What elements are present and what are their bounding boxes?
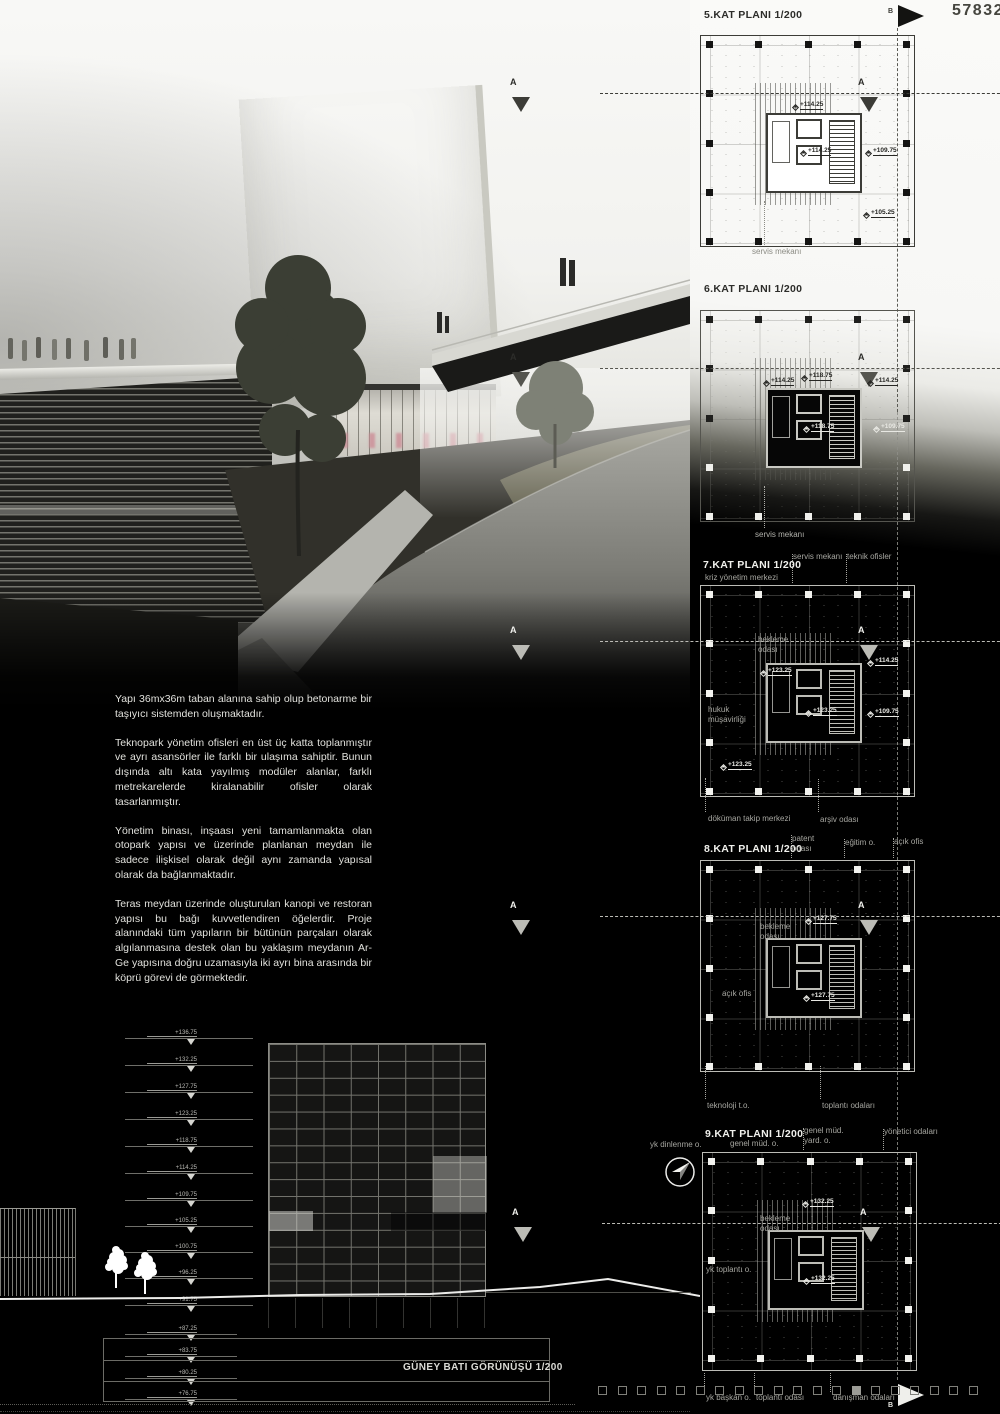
section-a-line: A A: [600, 916, 1000, 917]
strip-square: [754, 1386, 763, 1395]
section-arrow-icon: [514, 1227, 532, 1242]
section-b-label: B: [888, 8, 893, 15]
section-a-label: A: [510, 625, 517, 635]
elevation-level: +127.75: [125, 1084, 253, 1093]
room-label: yönetici odaları: [884, 1127, 938, 1137]
room-label: yk toplantı o.: [706, 1265, 751, 1275]
strip-square: [949, 1386, 958, 1395]
level-marker-icon: [863, 212, 870, 219]
section-b-arrow-icon: [898, 5, 924, 27]
slab-line: [104, 1381, 549, 1382]
column-grid: [706, 591, 713, 598]
strip-square: [969, 1386, 978, 1395]
level-marker: +123.25: [721, 761, 752, 770]
elevation-level: +105.25: [125, 1218, 253, 1227]
section-arrow-icon: [512, 372, 530, 387]
level-marker: +114.25: [793, 101, 823, 110]
room-label: servis mekanı: [793, 552, 842, 562]
section-arrow-icon: [512, 97, 530, 112]
section-a-label: A: [860, 1207, 867, 1217]
room-label: bekleme odası: [758, 635, 796, 654]
section-a-line: A A: [600, 641, 1000, 642]
strip-square: [813, 1386, 822, 1395]
elevator-icon: [796, 970, 822, 990]
strip-square: [793, 1386, 802, 1395]
room-label: eğitim o.: [845, 838, 875, 848]
leader-line: [792, 554, 793, 583]
section-a-label: A: [510, 900, 517, 910]
north-arrow-icon: [663, 1155, 697, 1189]
wc-cell: [772, 671, 790, 713]
render-scene: [0, 0, 690, 710]
room-label: kriz yönetim merkezi: [705, 573, 778, 583]
elevation-level: +123.25: [125, 1111, 253, 1120]
room-label: yk dinlenme o.: [650, 1140, 702, 1150]
level-marker: +114.25: [764, 377, 794, 386]
competition-board: 57832 B B 5.KAT PLANI 1/200 A A +114.25 …: [0, 0, 1000, 1414]
level-arrow-icon: [187, 1174, 195, 1180]
elevator-icon: [796, 944, 822, 964]
room-label: açık ofis: [722, 989, 751, 999]
level-arrow-icon: [187, 1066, 195, 1072]
section-a-label: A: [858, 900, 865, 910]
strip-square: [676, 1386, 685, 1395]
room-label: bekleme odası: [760, 922, 796, 941]
leader-line: [883, 1129, 884, 1150]
room-label: genel müd. o.: [730, 1139, 778, 1149]
wc-cell: [772, 121, 790, 163]
level-marker-icon: [803, 426, 810, 433]
room-label: patent odası: [792, 834, 822, 853]
stair-icon: [831, 1237, 857, 1301]
column-grid: [706, 316, 713, 323]
elevation-title: GÜNEY BATI GÖRÜNÜŞÜ 1/200: [403, 1362, 548, 1373]
elevator-icon: [796, 669, 822, 689]
glass-reflection: [433, 1156, 487, 1213]
strip-square: [715, 1386, 724, 1395]
elevation-level: +109.75: [125, 1192, 253, 1201]
entry-number: 57832: [952, 2, 1000, 20]
paragraph: Yapı 36mx36m taban alanına sahip olup be…: [115, 692, 372, 722]
section-a-line: A A: [600, 368, 1000, 369]
elevation-level: +136.75: [125, 1030, 253, 1039]
room-label: hukuk müşavirliği: [708, 705, 758, 724]
room-label: toplantı odaları: [822, 1101, 875, 1111]
level-marker-icon: [805, 710, 812, 717]
strip-square: [891, 1386, 900, 1395]
level-marker-icon: [802, 1201, 809, 1208]
level-marker: +127.75: [804, 992, 835, 1001]
column-grid: [708, 1158, 715, 1165]
room-label: servis mekanı: [752, 247, 801, 257]
service-core: [768, 1230, 864, 1310]
section-a-label: A: [510, 77, 517, 87]
elevator-icon: [796, 394, 822, 414]
narrative-text: Yapı 36mx36m taban alanına sahip olup be…: [115, 692, 372, 1000]
section-arrow-icon: [860, 97, 878, 112]
shadow-patch: [391, 1212, 487, 1231]
section-a-line: A A: [602, 1223, 1000, 1224]
strip-square: [910, 1386, 919, 1395]
leader-line: [820, 1066, 821, 1099]
elevator-icon: [796, 119, 822, 139]
room-label: teknoloji t.o.: [707, 1101, 750, 1111]
strip-square: [930, 1386, 939, 1395]
level-marker: +109.75: [868, 708, 899, 717]
level-marker-icon: [805, 918, 812, 925]
strip-square: [696, 1386, 705, 1395]
elevation-level: +100.75: [125, 1244, 253, 1253]
leader-line: [764, 486, 765, 528]
room-label: bekleme odası: [760, 1214, 796, 1233]
strip-square: [618, 1386, 627, 1395]
elevation-facade-grid: [268, 1043, 486, 1297]
level-marker-icon: [867, 380, 874, 387]
leader-line: [705, 1066, 706, 1099]
level-arrow-icon: [187, 1147, 195, 1153]
leader-line: [791, 835, 792, 858]
section-a-label: A: [510, 352, 517, 362]
dark-tree: [235, 255, 366, 462]
wc-cell: [772, 396, 790, 438]
strip-square: [832, 1386, 841, 1395]
section-a-label: A: [858, 625, 865, 635]
leader-line: [893, 838, 894, 858]
section-arrow-icon: [860, 920, 878, 935]
room-label: genel müd. yard. o.: [804, 1126, 852, 1145]
section-arrow-icon: [512, 645, 530, 660]
service-core: [766, 938, 862, 1018]
leader-line: [764, 201, 765, 245]
dotted-baseline: [0, 1404, 575, 1405]
strip-square: [871, 1386, 880, 1395]
room-label: teknik ofisler: [847, 552, 891, 562]
level-arrow-icon: [187, 1253, 195, 1259]
plan-title: 8.KAT PLANI 1/200: [704, 843, 802, 855]
room-label: arşiv odası: [820, 815, 859, 825]
level-arrow-icon: [187, 1227, 195, 1233]
strip-square: [598, 1386, 607, 1395]
stair-icon: [829, 670, 855, 734]
wc-cell: [772, 946, 790, 988]
section-b-label: B: [888, 1402, 893, 1409]
paragraph: Yönetim binası, inşaası yeni tamamlanmak…: [115, 824, 372, 883]
tree-icon: [112, 1260, 120, 1268]
section-arrow-icon: [862, 1227, 880, 1242]
level-marker: +114.25: [801, 147, 831, 156]
slab-line: [104, 1360, 549, 1361]
thumbnail-strip: [598, 1382, 988, 1400]
tree-trunk: [298, 430, 299, 556]
leader-line: [846, 554, 847, 583]
paragraph: Teknopark yönetim ofisleri en üst üç kat…: [115, 736, 372, 810]
leader-line: [803, 1128, 804, 1150]
level-marker-icon: [867, 711, 874, 718]
level-marker-icon: [803, 1278, 810, 1285]
level-marker: +114.25: [868, 377, 898, 386]
level-marker: +109.75: [874, 423, 905, 432]
level-marker: +118.75: [802, 372, 832, 381]
level-marker: +123.25: [761, 667, 792, 676]
strip-square: [852, 1386, 861, 1395]
plan-title: 5.KAT PLANI 1/200: [704, 9, 802, 21]
section-a-label: A: [858, 352, 865, 362]
level-marker-icon: [760, 670, 767, 677]
level-marker-icon: [720, 764, 727, 771]
room-label: döküman takip merkezi: [708, 814, 790, 824]
elevator-icon: [798, 1236, 824, 1256]
level-marker-icon: [803, 995, 810, 1002]
level-marker-icon: [763, 380, 770, 387]
leader-line: [844, 839, 845, 858]
room-label: servis mekanı: [755, 530, 804, 540]
elevation-level: +118.75: [125, 1138, 253, 1147]
strip-square: [637, 1386, 646, 1395]
glass-reflection: [269, 1211, 313, 1231]
room-label: açık ofis: [894, 837, 923, 847]
level-marker: +123.25: [806, 707, 837, 716]
leader-line: [818, 779, 819, 812]
plan-title: 7.KAT PLANI 1/200: [703, 559, 801, 571]
strip-square: [774, 1386, 783, 1395]
level-arrow-icon: [187, 1120, 195, 1126]
level-marker: +109.75: [866, 147, 897, 156]
level-arrow-icon: [187, 1201, 195, 1207]
column-grid: [706, 866, 713, 873]
section-a-label: A: [858, 77, 865, 87]
column-grid: [706, 41, 713, 48]
wc-cell: [774, 1238, 792, 1280]
level-marker-icon: [867, 660, 874, 667]
strip-square: [735, 1386, 744, 1395]
level-marker-icon: [873, 426, 880, 433]
stair-icon: [829, 120, 855, 184]
elevation-level: +87.25: [125, 1326, 237, 1335]
level-arrow-icon: [187, 1093, 195, 1099]
section-a-line: A A: [600, 93, 1000, 94]
elevation-level: +132.25: [125, 1057, 253, 1066]
dotted-baseline: [0, 1411, 690, 1412]
level-marker: +127.75: [806, 915, 837, 924]
section-a-label: A: [512, 1207, 519, 1217]
level-marker-icon: [800, 150, 807, 157]
section-arrow-icon: [512, 920, 530, 935]
level-marker-icon: [865, 150, 872, 157]
leader-line: [705, 778, 706, 812]
paragraph: Teras meydan üzerinde oluşturulan kanopi…: [115, 897, 372, 986]
level-arrow-icon: [187, 1039, 195, 1045]
level-marker: +132.25: [804, 1275, 835, 1284]
elevation-level: +114.25: [125, 1165, 253, 1174]
level-marker-icon: [792, 104, 799, 111]
level-marker: +114.25: [868, 657, 898, 666]
level-marker: +118.75: [804, 423, 834, 432]
strip-square: [657, 1386, 666, 1395]
terrace-line: [486, 1292, 691, 1293]
plan-title: 6.KAT PLANI 1/200: [704, 283, 802, 295]
level-marker-icon: [801, 375, 808, 382]
level-marker: +105.25: [864, 209, 895, 218]
level-marker: +132.25: [803, 1198, 834, 1207]
